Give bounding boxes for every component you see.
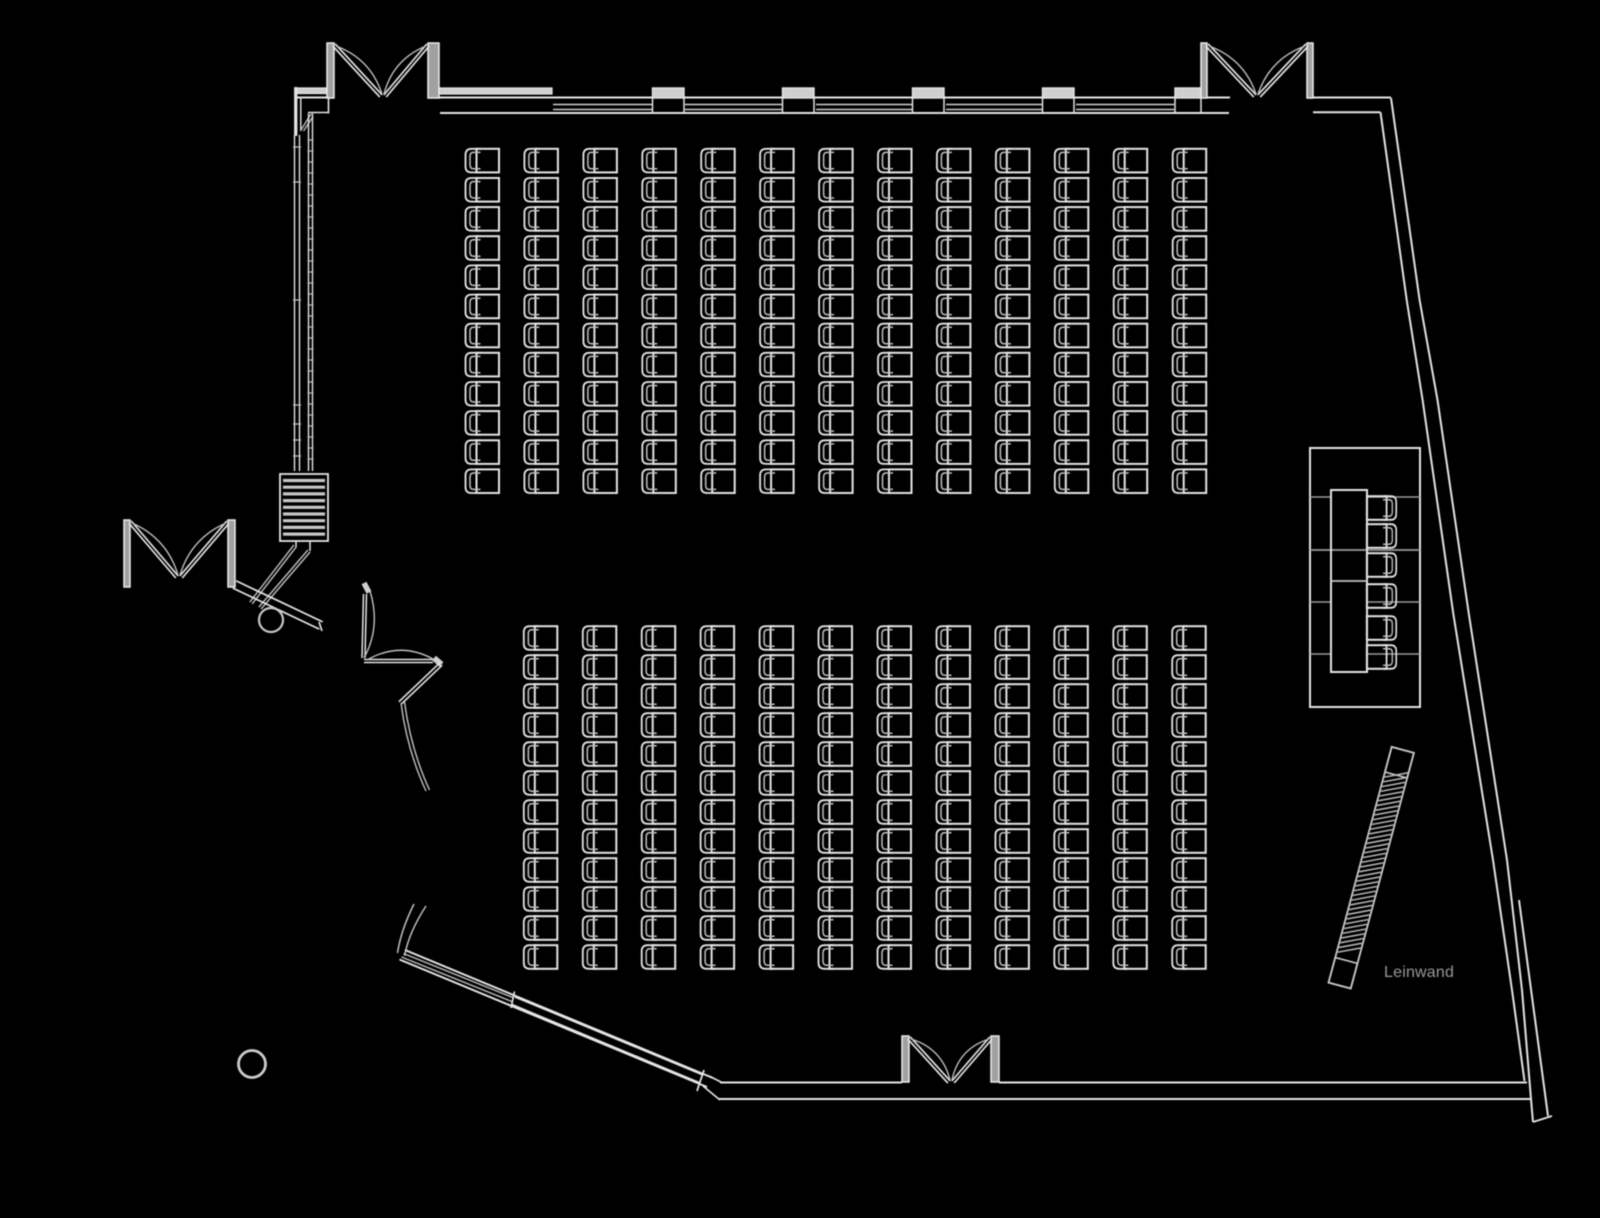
svg-text:Leinwand: Leinwand	[1384, 964, 1454, 981]
